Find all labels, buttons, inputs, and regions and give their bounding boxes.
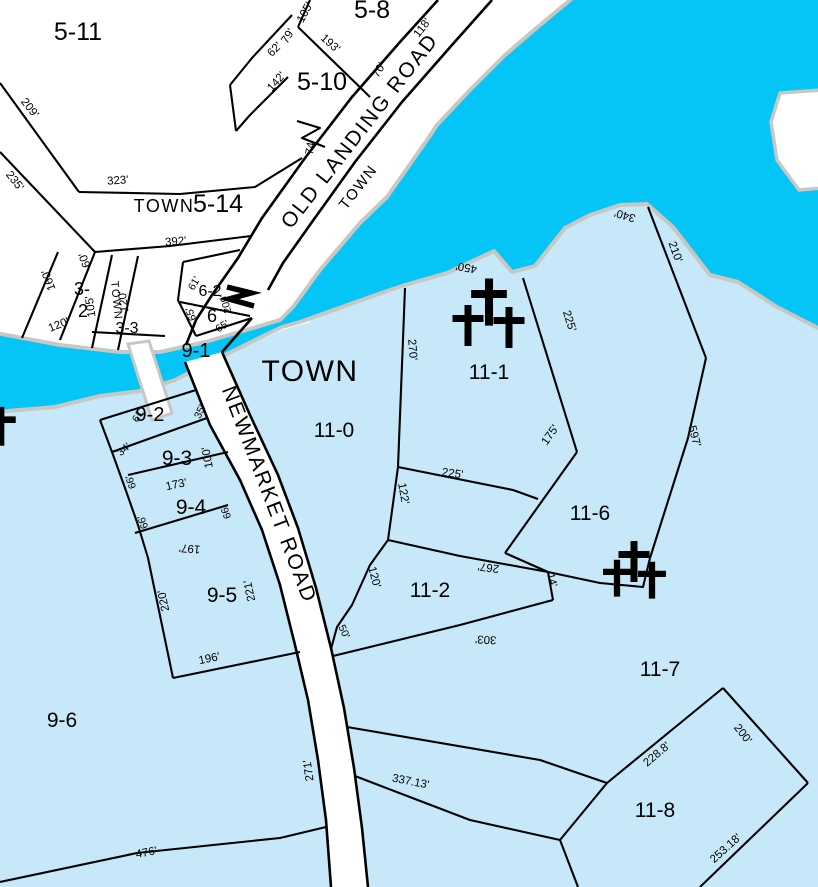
parcel-label: 5-8 (354, 0, 390, 24)
parcel-label: 9-1 (182, 340, 211, 362)
parcel-label: 11-6 (570, 502, 610, 525)
parcel-label: 11-1 (469, 361, 509, 384)
parcel-label: 3- (74, 279, 90, 299)
measurement-label: 392' (165, 235, 187, 249)
parcel-label: 6-2 (198, 283, 221, 300)
parcel-label: 11-2 (410, 579, 450, 602)
measurement-label: 197' (179, 541, 201, 555)
parcel-label: 9-3 (162, 447, 192, 470)
parcel-label: 9-6 (47, 709, 77, 732)
town-area-label: TOWN (261, 355, 358, 388)
tax-map-viewport[interactable]: 209'235'323'392'160'60'105'120'120'105'7… (0, 0, 818, 887)
measurement-label: 270' (405, 339, 419, 361)
measurement-label: 74' (304, 139, 318, 156)
parcel-label: 5-10 (297, 68, 347, 96)
parcel-label: 2 (78, 301, 88, 321)
parcel-label: 11-8 (635, 799, 675, 822)
parcel-label: 9-5 (207, 584, 237, 607)
parcel-label: 6 (207, 306, 217, 326)
parcel-label: 11-0 (314, 419, 354, 442)
parcel-label: 3-3 (115, 320, 138, 337)
parcel-label: 9-2 (136, 404, 165, 426)
town-area-label: TOWN (134, 196, 195, 216)
measurement-label: 303' (475, 632, 497, 645)
parcel-label: 5-14 (193, 190, 243, 218)
parcel-label: 11-7 (640, 658, 680, 681)
parcel-label: 5-11 (54, 18, 102, 46)
parcel-label: 9-4 (176, 496, 207, 519)
map-svg[interactable]: 209'235'323'392'160'60'105'120'120'105'7… (0, 0, 818, 887)
measurement-label: 323' (107, 174, 129, 187)
